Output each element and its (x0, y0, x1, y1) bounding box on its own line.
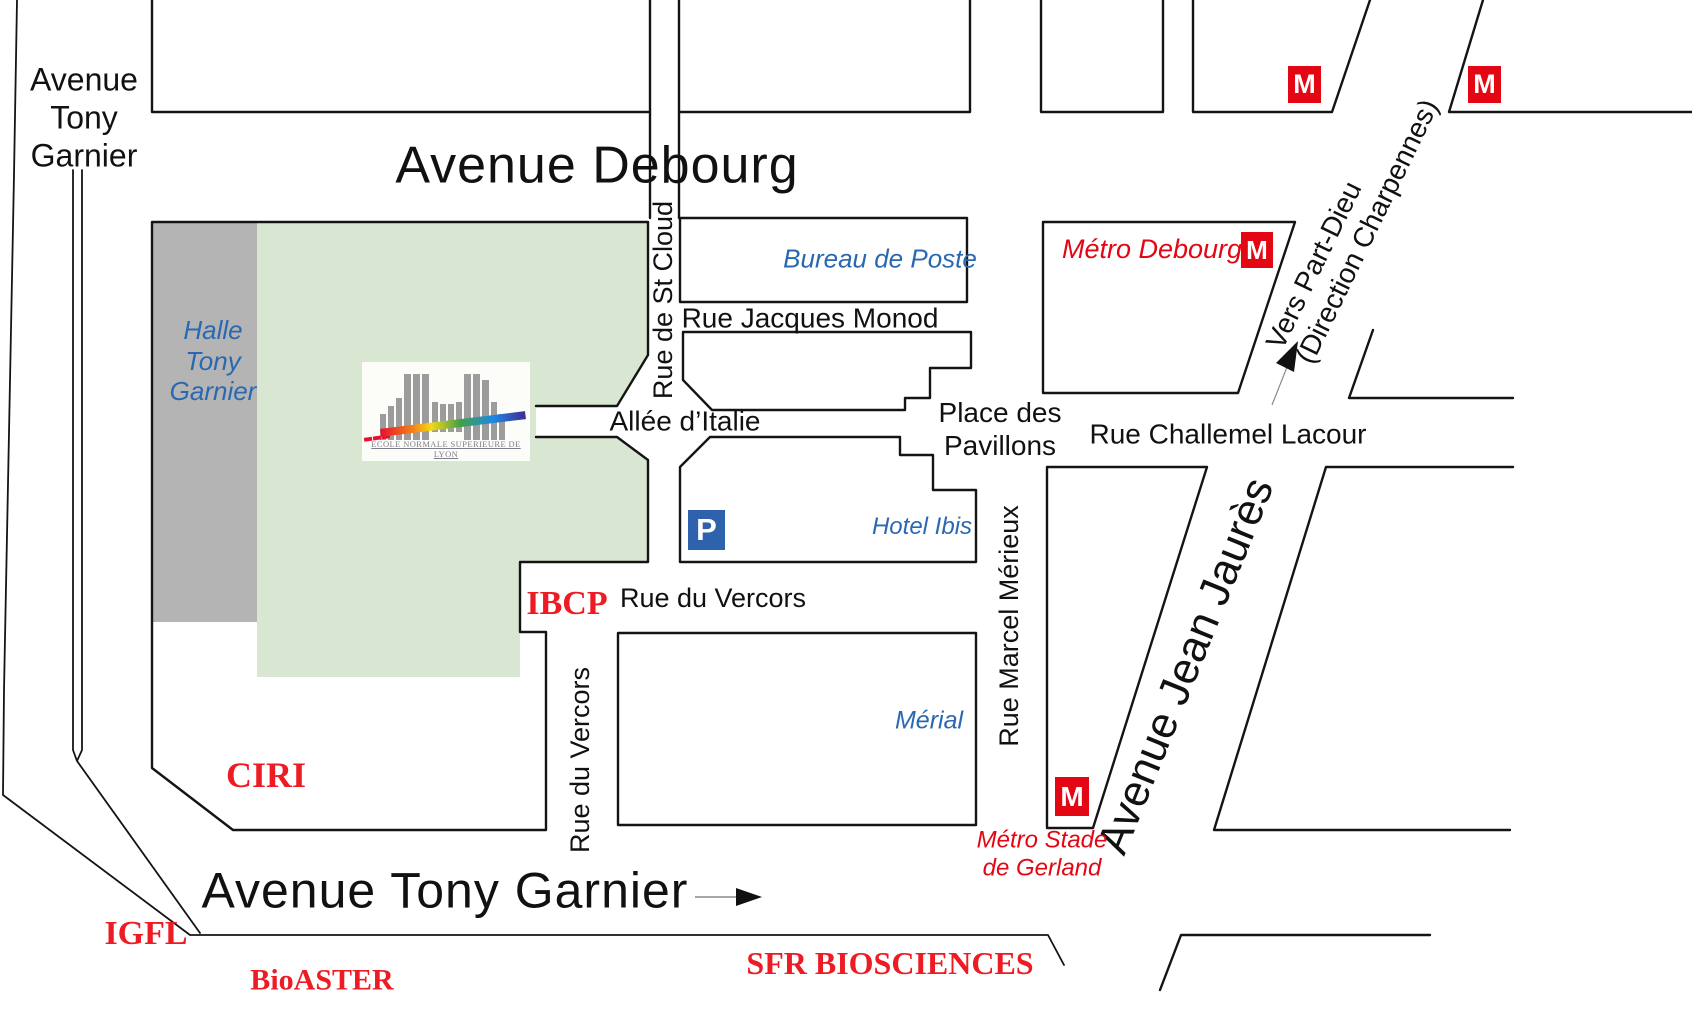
label-line: Garnier (30, 137, 138, 175)
avenue-tony-garnier-arrow (695, 888, 762, 906)
parking-p-letter: P (696, 512, 717, 548)
label-igfl: IGFL (104, 914, 187, 954)
label-bioaster: BioASTER (250, 962, 393, 997)
label-ciri: CIRI (226, 754, 306, 796)
label-line: Garnier (170, 376, 257, 407)
label-line: Avenue (30, 61, 138, 99)
bottom-right-edge (1160, 935, 1430, 990)
halle-tony-garnier-gray-area (152, 222, 257, 622)
metro-m-letter: M (1293, 69, 1316, 100)
label-line: Halle (170, 315, 257, 346)
metro-m-letter: M (1473, 69, 1496, 100)
label-line: Place des (939, 396, 1062, 429)
label-line: de Gerland (977, 855, 1108, 883)
parking-icon: P (688, 510, 725, 550)
metro-icon-stade-de-gerland: M (1055, 777, 1089, 816)
block-top-3 (1041, 0, 1163, 112)
label-metro-stade-de-gerland: Métro Stade de Gerland (977, 827, 1108, 884)
label-rue-de-st-cloud: Rue de St Cloud (648, 201, 680, 399)
metro-icon-top-1: M (1288, 66, 1321, 103)
challemel-ne-corner (1349, 330, 1513, 398)
block-top-1 (152, 0, 650, 112)
label-merial: Mérial (895, 706, 963, 736)
metro-icon-debourg: M (1241, 232, 1273, 268)
label-line: Tony (30, 99, 138, 137)
label-allee-d-italie: Allée d’Italie (610, 404, 761, 437)
metro-m-letter: M (1246, 235, 1268, 266)
metro-icon-top-2: M (1468, 66, 1501, 103)
label-sfr-biosciences: SFR BIOSCIENCES (746, 945, 1033, 983)
block-top-2 (679, 0, 970, 112)
metro-m-letter: M (1060, 781, 1083, 813)
label-metro-debourg: Métro Debourg (1062, 234, 1242, 266)
label-bureau-de-poste: Bureau de Poste (783, 244, 977, 275)
ens-logo-caption: ECOLE NORMALE SUPERIEURE DE LYON (362, 439, 530, 459)
ens-lyon-logo: ECOLE NORMALE SUPERIEURE DE LYON (362, 362, 530, 461)
label-place-des-pavillons: Place des Pavillons (939, 396, 1062, 462)
label-halle-tony-garnier: Halle Tony Garnier (170, 315, 257, 407)
gerland-campus-map: ECOLE NORMALE SUPERIEURE DE LYON M M M M… (0, 0, 1692, 1030)
label-line: Pavillons (939, 429, 1062, 462)
label-rue-jacques-monod: Rue Jacques Monod (682, 301, 939, 334)
label-avenue-debourg: Avenue Debourg (395, 135, 798, 196)
label-avenue-tony-garnier-top: Avenue Tony Garnier (30, 61, 138, 174)
label-line: Métro Stade (977, 827, 1108, 855)
label-rue-marcel-merieux: Rue Marcel Mérieux (994, 505, 1026, 747)
label-rue-du-vercors-horizontal: Rue du Vercors (620, 583, 806, 615)
label-line: Tony (170, 346, 257, 377)
block-top-4 (1193, 0, 1370, 112)
label-avenue-tony-garnier-bottom: Avenue Tony Garnier (202, 862, 689, 921)
label-ibcp: IBCP (526, 584, 607, 624)
label-rue-challemel-lacour: Rue Challemel Lacour (1089, 417, 1366, 450)
monod-block (683, 332, 971, 410)
label-rue-du-vercors-vertical: Rue du Vercors (565, 667, 597, 853)
label-hotel-ibis: Hotel Ibis (872, 513, 972, 541)
